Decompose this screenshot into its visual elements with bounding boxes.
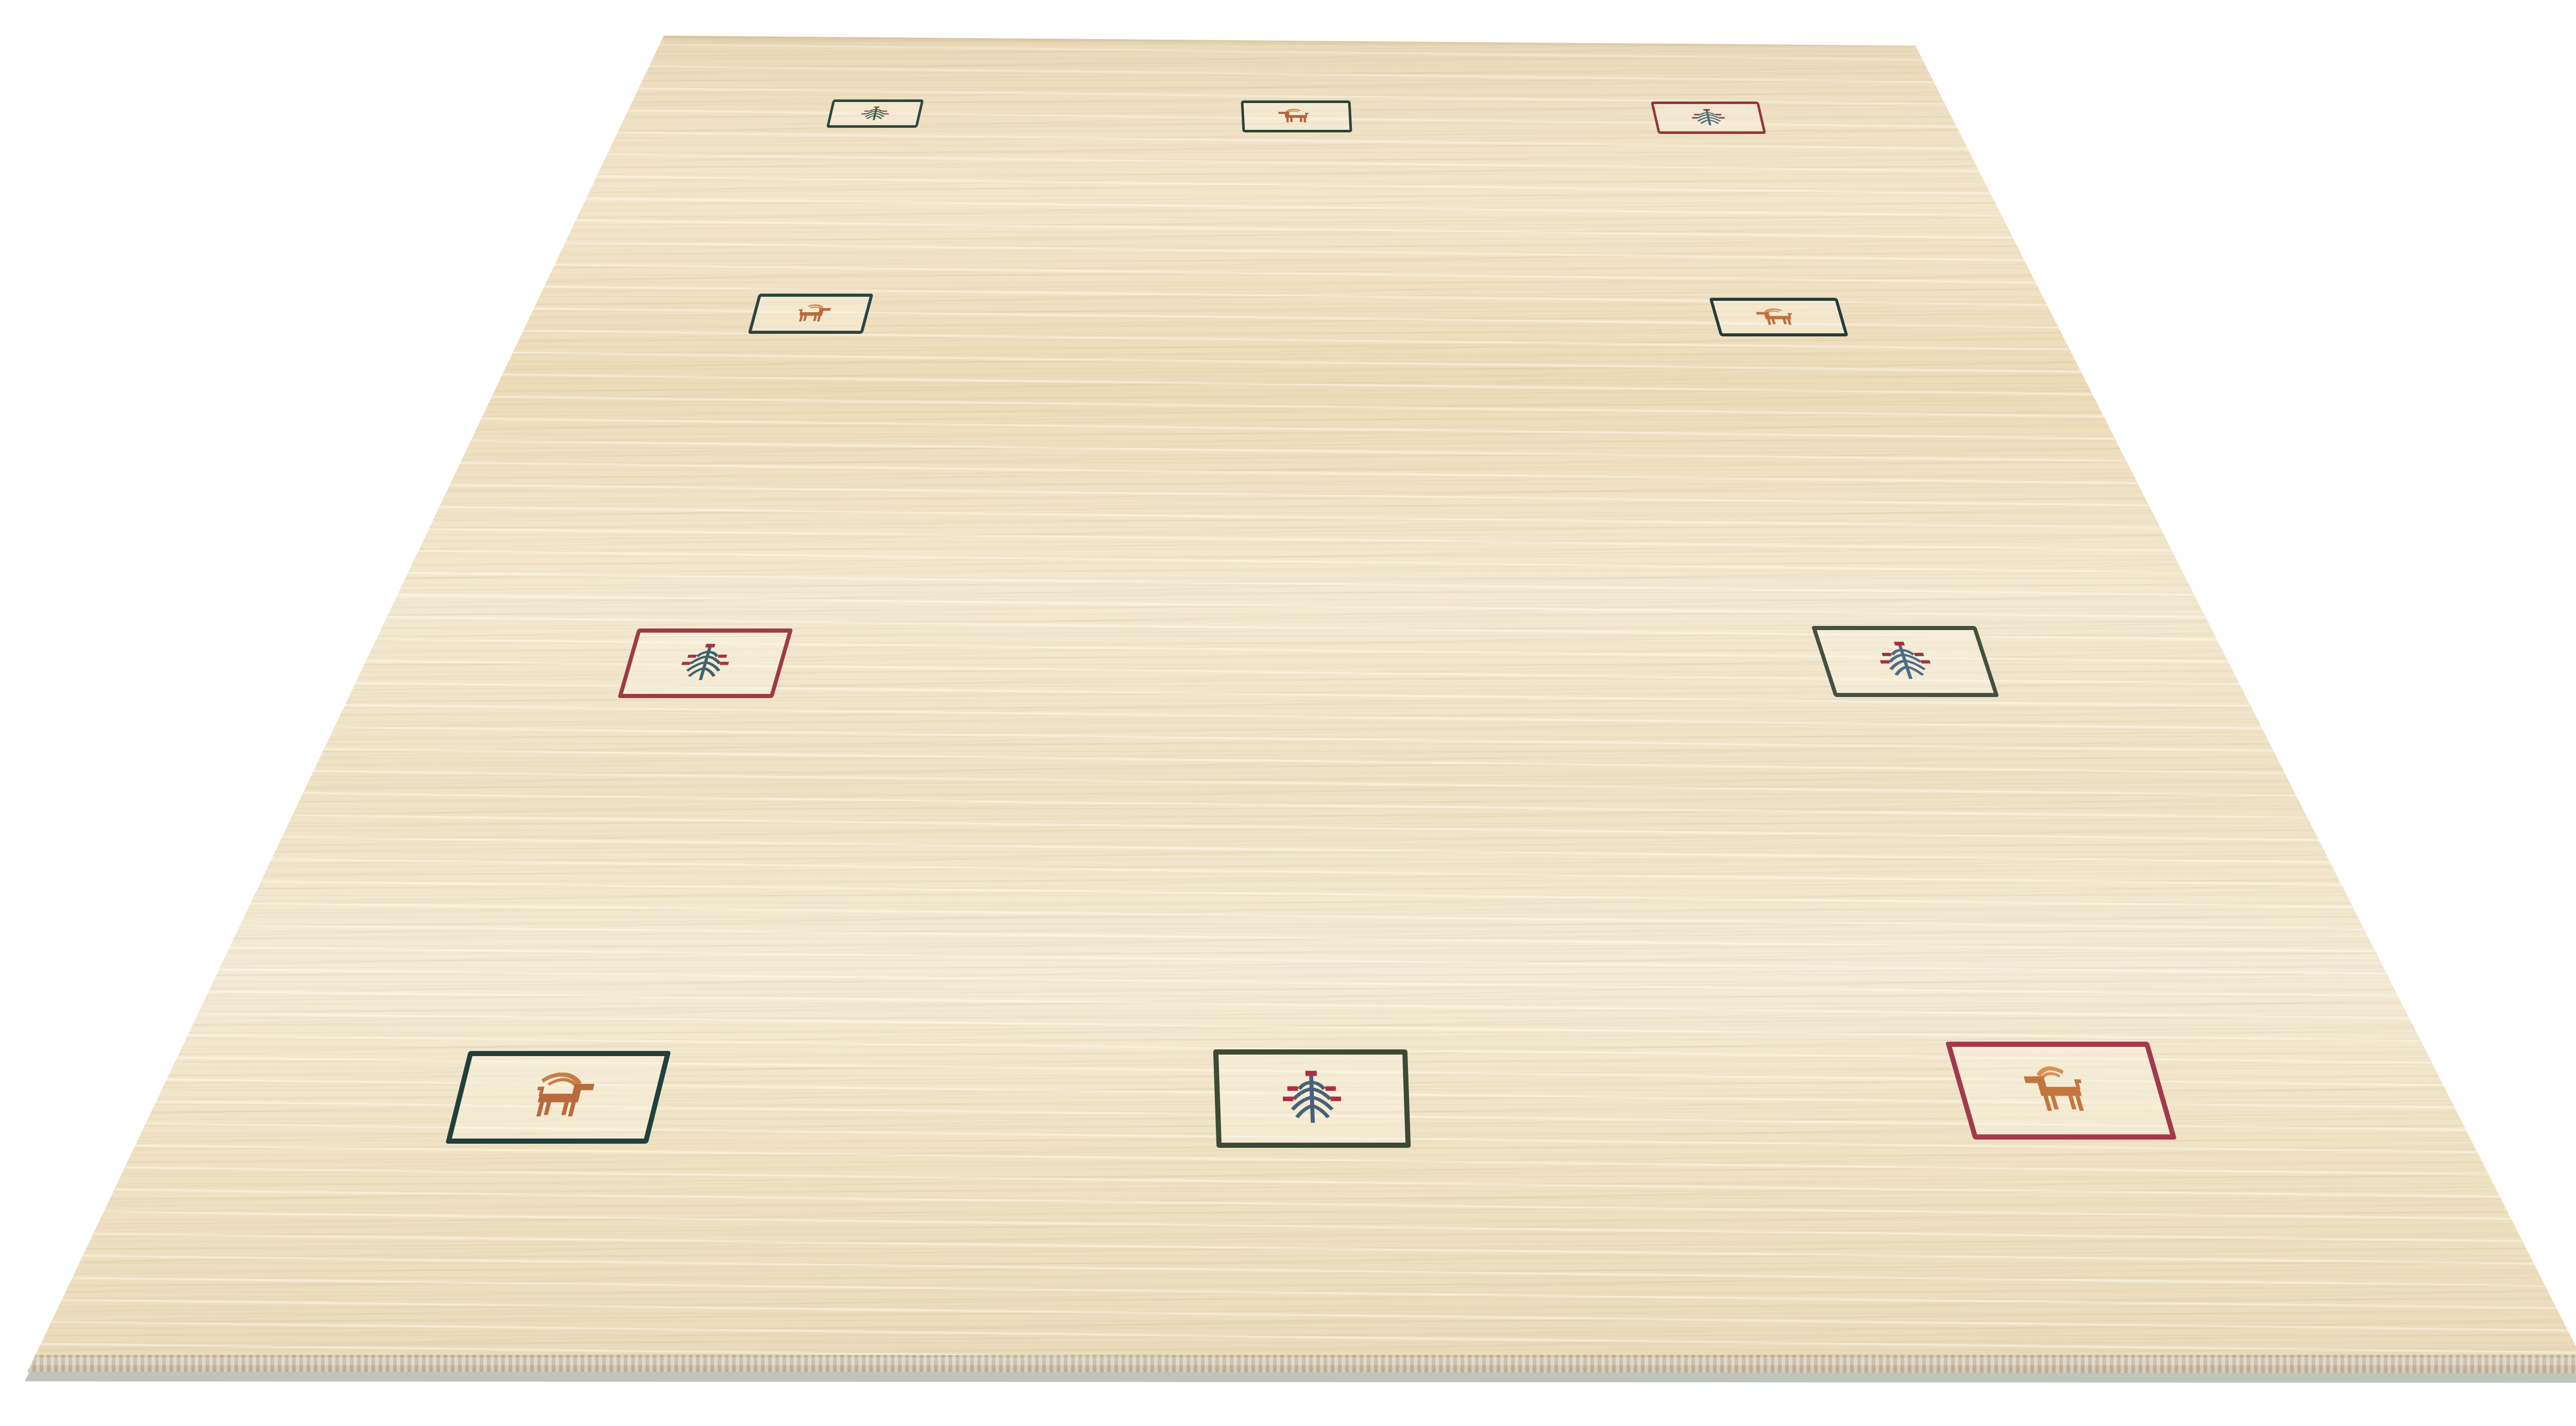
motif-lower-right-tree — [1811, 626, 1999, 697]
tree-icon — [667, 643, 743, 684]
animal-icon — [510, 1073, 607, 1122]
tree-icon — [1684, 109, 1733, 127]
tree-icon — [1864, 641, 1946, 683]
animal-icon — [1749, 308, 1808, 327]
tree-icon — [1270, 1069, 1353, 1128]
motif-top-center-animal — [1241, 100, 1352, 132]
tree-icon — [854, 106, 895, 122]
motif-top-right-tree — [1650, 101, 1766, 134]
animal-icon — [2011, 1064, 2111, 1117]
rug-far-edge — [627, 33, 1960, 49]
rug — [0, 0, 2576, 1426]
animal-icon — [784, 303, 838, 324]
motif-middle-right-animal — [1709, 298, 1849, 336]
motif-top-left-tree — [826, 99, 924, 128]
motif-bottom-right-animal — [1945, 1042, 2177, 1140]
motif-lower-left-tree — [617, 629, 793, 698]
product-photo — [0, 0, 2576, 1426]
motif-bottom-left-goat — [446, 1051, 671, 1144]
motif-bottom-center-tree — [1213, 1049, 1411, 1148]
animal-icon — [1273, 109, 1320, 125]
motif-middle-left-animal — [748, 294, 874, 334]
